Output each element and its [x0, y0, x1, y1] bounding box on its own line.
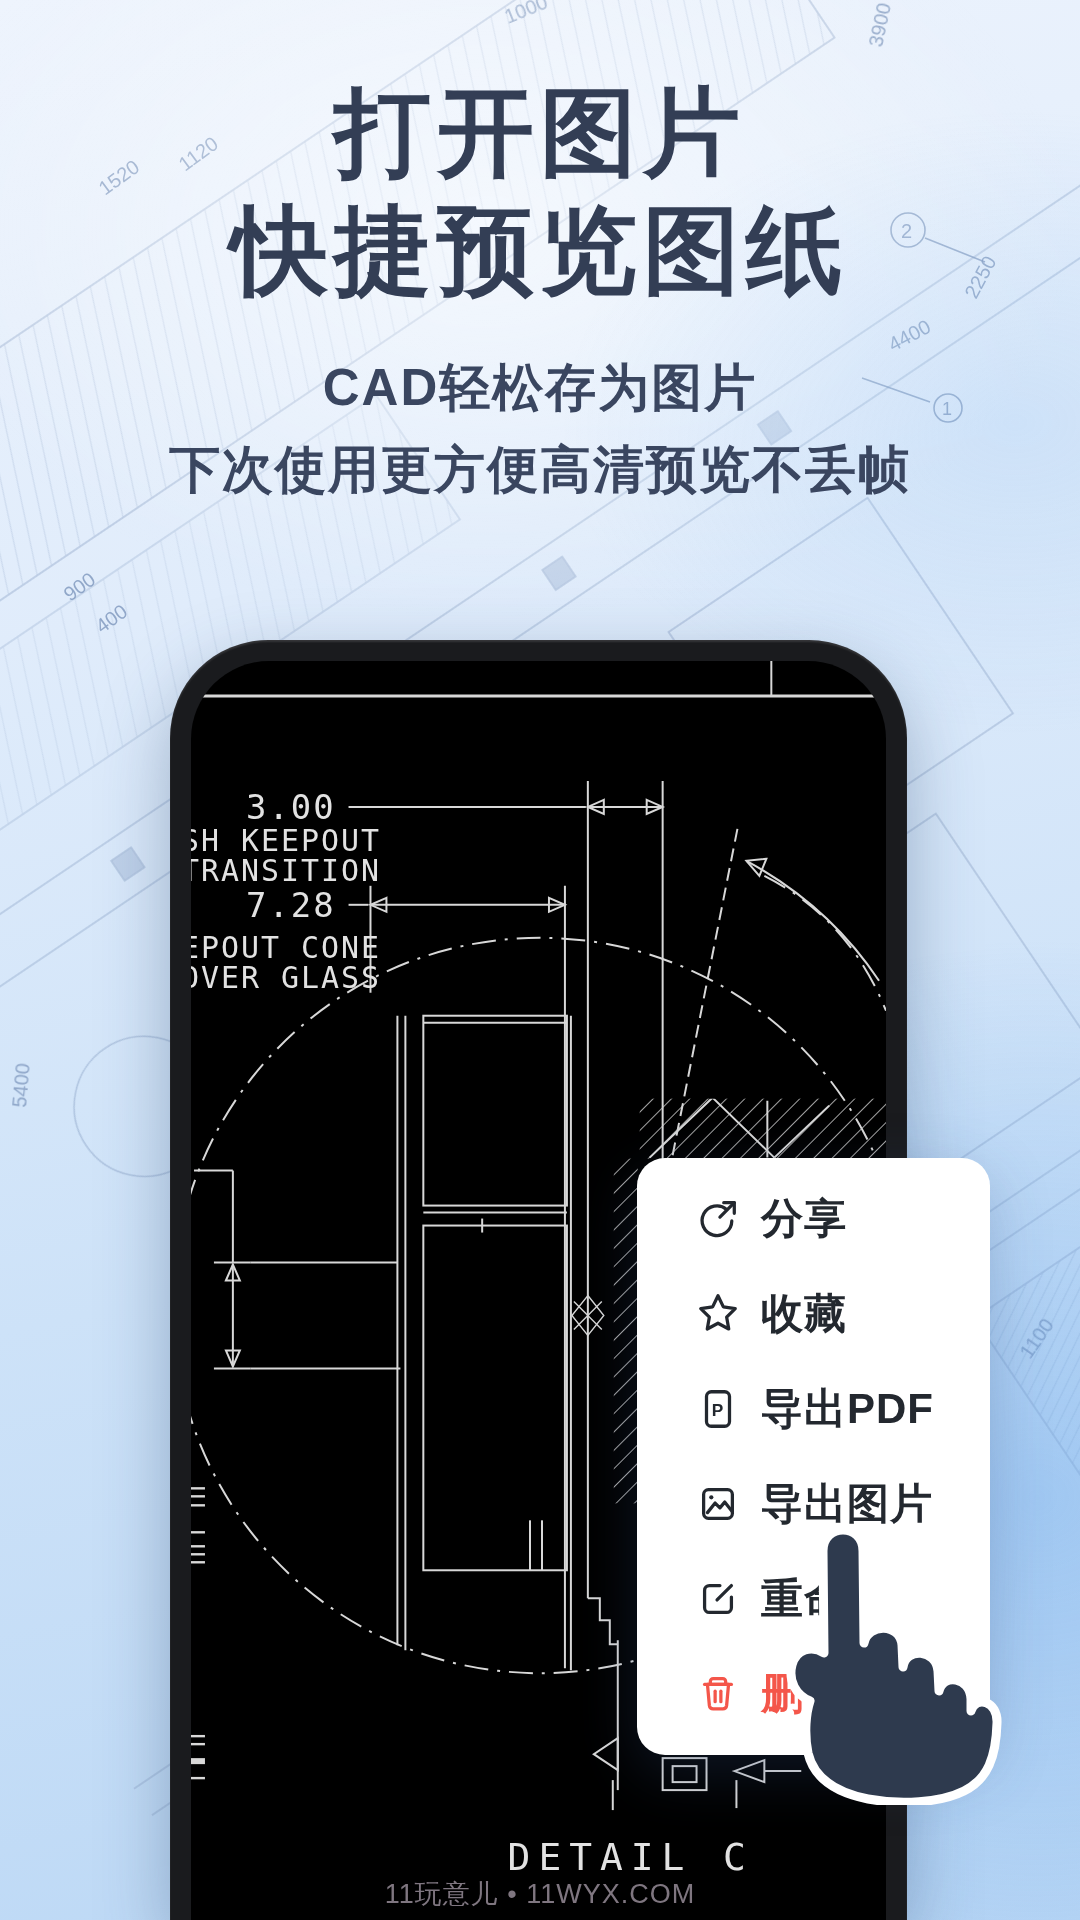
hand-pointer-icon — [750, 1495, 1040, 1805]
cad-dim1-value: 3.00 — [246, 788, 336, 827]
pdf-icon: P — [695, 1386, 741, 1432]
page-title-line2: 快捷预览图纸 — [0, 192, 1080, 310]
page-title-line1: 打开图片 — [0, 74, 1080, 192]
menu-item-share[interactable]: 分享 — [637, 1171, 990, 1266]
bp-label: 5400 — [8, 1062, 34, 1108]
hero-header: 打开图片 快捷预览图纸 CAD轻松存为图片 下次使用更方便高清预览不丢帧 — [0, 74, 1080, 512]
watermark: 11玩意儿 • 11WYX.COM — [0, 1876, 1080, 1912]
star-icon — [695, 1291, 741, 1337]
cad-dim1-label2: TRANSITION — [191, 853, 381, 888]
subtitle-line2: 下次使用更方便高清预览不丢帧 — [0, 429, 1080, 512]
bp-label: 3900 — [864, 1, 895, 49]
menu-item-label: 分享 — [761, 1191, 847, 1247]
cad-dim2-value: 7.28 — [246, 886, 336, 925]
cad-detail-label: DETAIL C — [508, 1835, 754, 1879]
svg-text:P: P — [712, 1399, 724, 1419]
image-icon — [695, 1481, 741, 1527]
menu-item-export-pdf[interactable]: P 导出PDF — [637, 1361, 990, 1456]
trash-icon — [695, 1671, 741, 1717]
share-icon — [695, 1196, 741, 1242]
menu-item-label: 收藏 — [761, 1286, 847, 1342]
cad-dim2-label2: OVER GLASS — [191, 960, 381, 995]
rename-icon — [695, 1576, 741, 1622]
subtitle-line1: CAD轻松存为图片 — [0, 347, 1080, 430]
menu-item-favorite[interactable]: 导出PDF 收藏 — [637, 1266, 990, 1361]
menu-item-label: 导出PDF — [761, 1381, 934, 1437]
